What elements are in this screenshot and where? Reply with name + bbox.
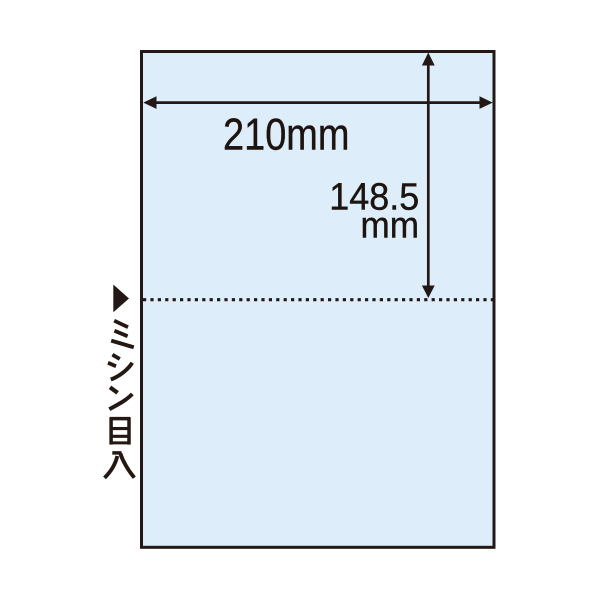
svg-text:mm: mm xyxy=(361,205,420,246)
svg-text:210mm: 210mm xyxy=(223,111,350,160)
